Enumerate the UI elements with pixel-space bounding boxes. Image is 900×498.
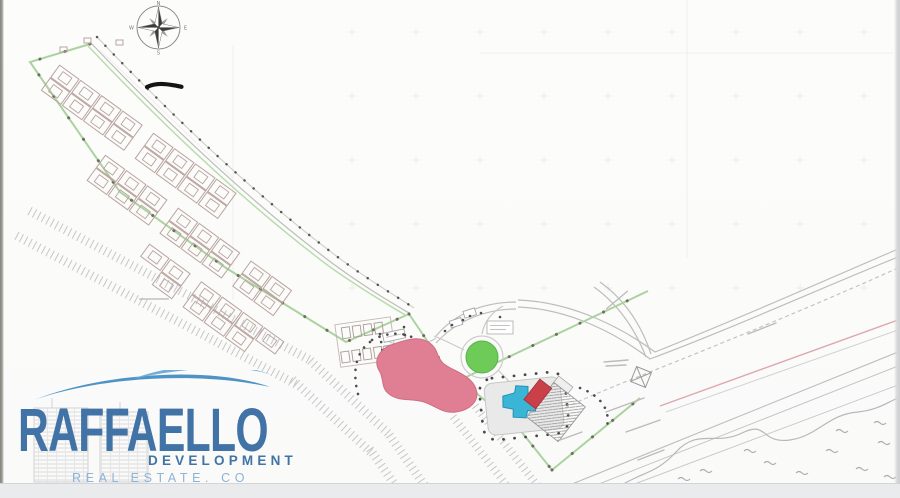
coastal-roads bbox=[540, 320, 898, 497]
roundabout-lawn bbox=[466, 341, 498, 373]
survey-pink-line bbox=[660, 320, 898, 406]
paper-edge-right bbox=[894, 0, 900, 486]
compass-east-label: E bbox=[184, 26, 187, 32]
survey-grid-crosses bbox=[330, 0, 890, 312]
screen-bottom-strip bbox=[0, 483, 900, 498]
scale-bar bbox=[147, 84, 182, 87]
scanned-site-plan: N E S W RAFFAELLO DEVELOPMENT REAL ESTAT… bbox=[0, 0, 900, 498]
compass-south-label: S bbox=[157, 51, 160, 57]
compass-rose: N E S W bbox=[129, 1, 187, 57]
paper-edge-left bbox=[0, 0, 4, 486]
raffaello-logo: RAFFAELLO DEVELOPMENT REAL ESTATE. CO bbox=[12, 370, 312, 486]
compass-west-label: W bbox=[129, 26, 134, 32]
utility-structure bbox=[631, 367, 652, 388]
sea-waves bbox=[678, 422, 896, 493]
brand-name: RAFFAELLO bbox=[18, 400, 268, 461]
brand-division: DEVELOPMENT bbox=[148, 453, 297, 468]
compass-north-label: N bbox=[157, 1, 161, 7]
